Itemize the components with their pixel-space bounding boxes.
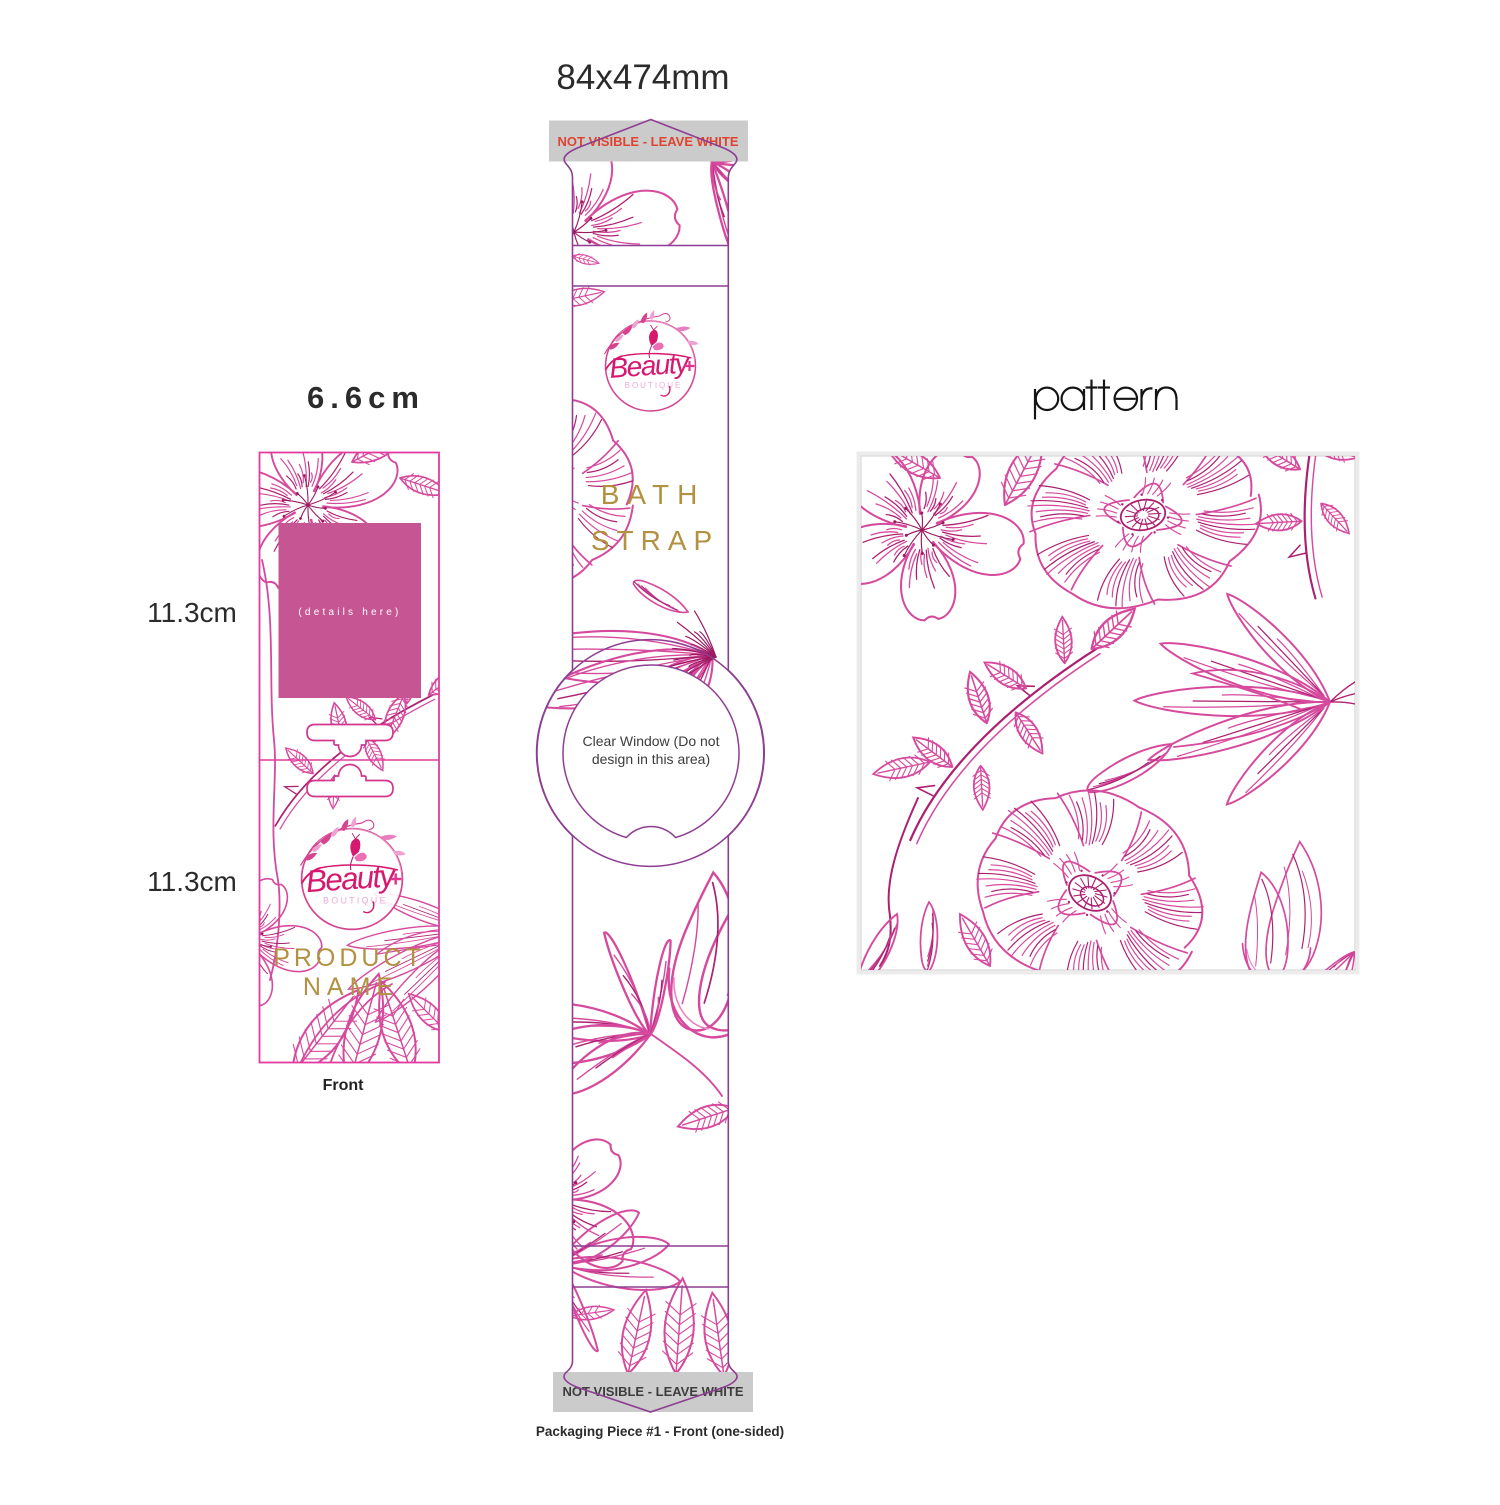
svg-text:Clear Window (Do not: Clear Window (Do not (583, 733, 720, 749)
svg-text:84x474mm: 84x474mm (556, 58, 729, 97)
svg-text:Beauty: Beauty (608, 347, 692, 384)
svg-text:11.3cm: 11.3cm (147, 866, 237, 897)
svg-text:BOUTIQUE: BOUTIQUE (323, 896, 388, 906)
svg-text:11.3cm: 11.3cm (147, 597, 237, 628)
svg-text:NOT VISIBLE - LEAVE WHITE: NOT VISIBLE - LEAVE WHITE (557, 134, 738, 149)
svg-text:BOUTIQUE: BOUTIQUE (625, 381, 683, 390)
svg-text:Front: Front (323, 1077, 365, 1094)
svg-text:STRAP: STRAP (591, 525, 719, 556)
svg-text:design in this area): design in this area) (592, 751, 710, 767)
svg-text:(details here): (details here) (298, 607, 401, 618)
svg-text:PRODUCT: PRODUCT (273, 944, 425, 972)
svg-text:6.6cm: 6.6cm (307, 380, 425, 415)
svg-text:Beauty: Beauty (305, 858, 399, 899)
svg-text:NAME: NAME (303, 973, 399, 1001)
svg-text:BATH: BATH (601, 479, 706, 510)
svg-text:Packaging Piece #1 - Front (on: Packaging Piece #1 - Front (one-sided) (536, 1424, 784, 1439)
